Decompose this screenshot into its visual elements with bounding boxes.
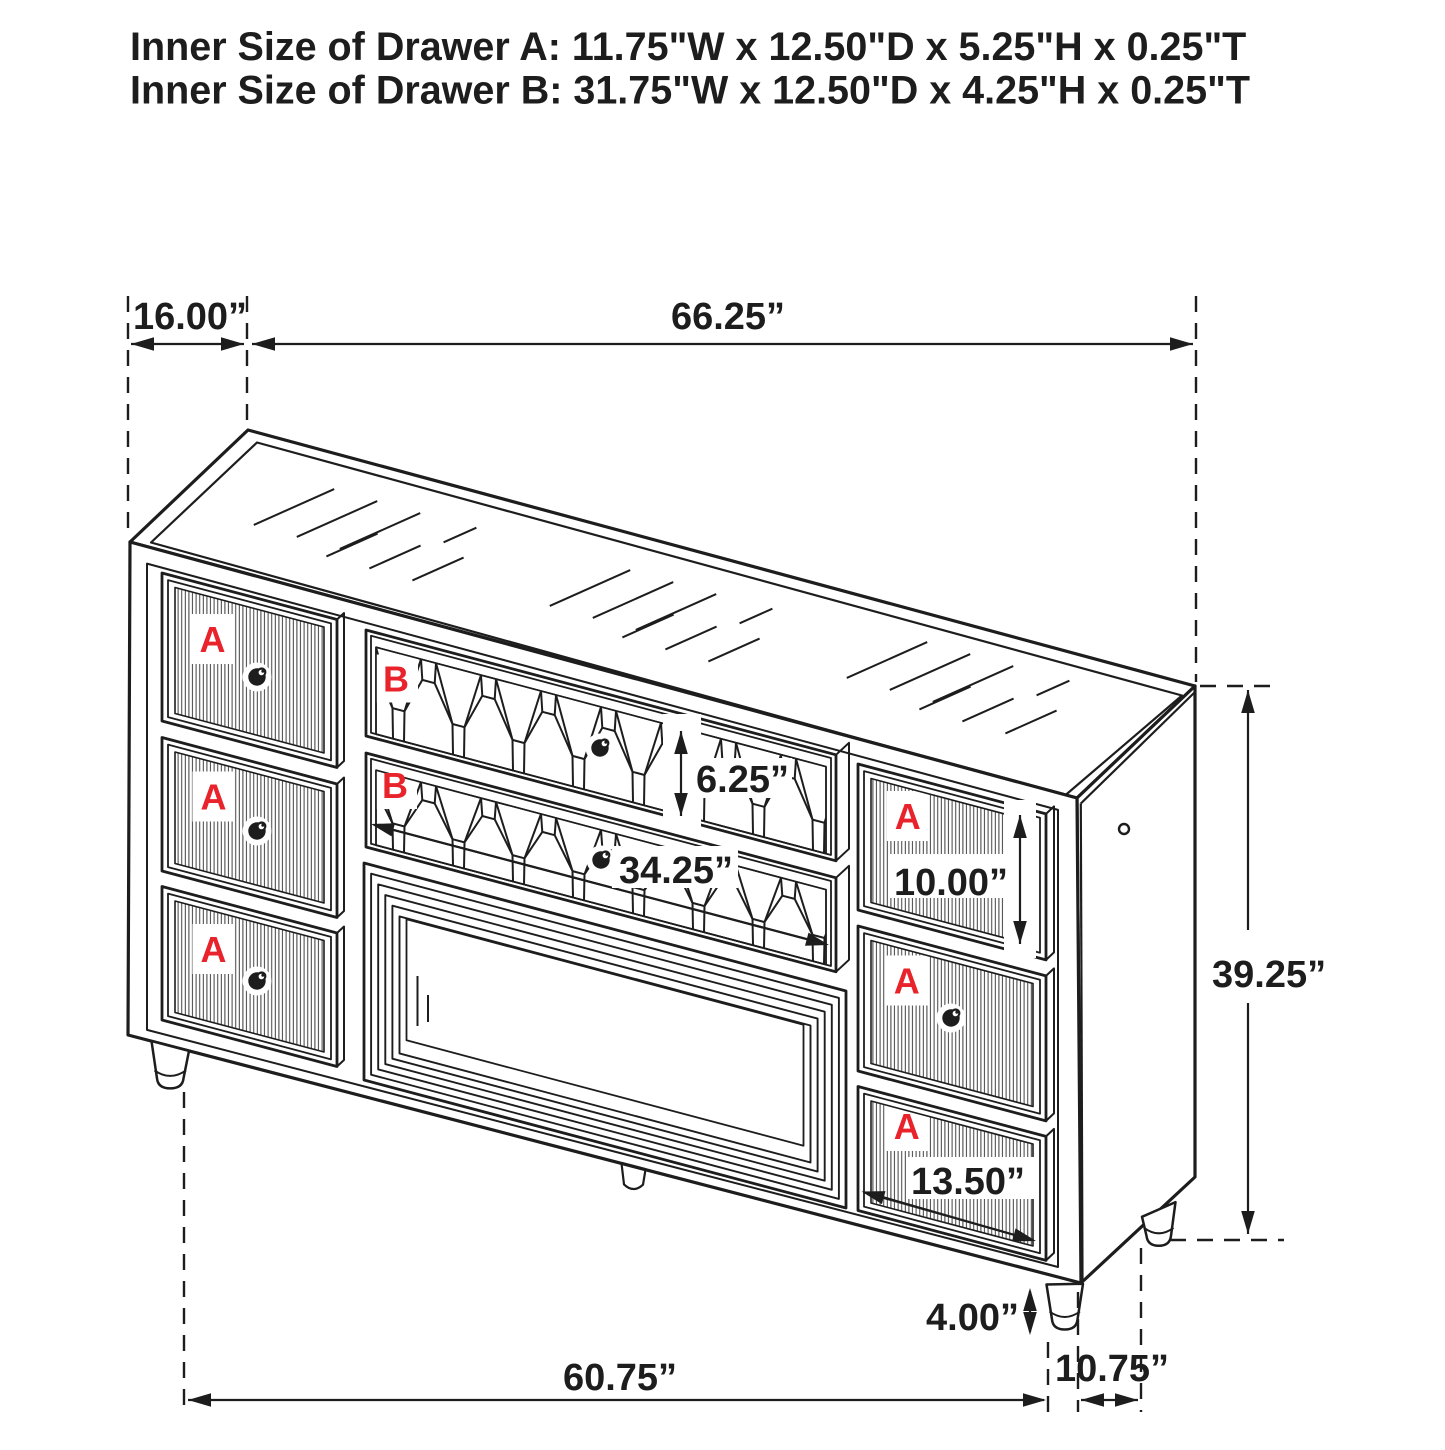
svg-text:Inner Size of Drawer B: 31.75": Inner Size of Drawer B: 31.75"W x 12.50"…	[130, 69, 1250, 113]
svg-text:B: B	[383, 659, 409, 700]
svg-text:16.00”: 16.00”	[133, 296, 247, 338]
svg-text:39.25”: 39.25”	[1212, 954, 1326, 996]
svg-text:A: A	[200, 619, 226, 660]
svg-text:66.25”: 66.25”	[671, 296, 785, 338]
svg-text:B: B	[382, 765, 408, 806]
svg-text:60.75”: 60.75”	[563, 1357, 677, 1399]
svg-text:34.25”: 34.25”	[619, 850, 733, 892]
svg-text:6.25”: 6.25”	[696, 759, 789, 801]
svg-text:A: A	[201, 929, 227, 970]
svg-text:10.00”: 10.00”	[894, 862, 1008, 904]
svg-text:A: A	[894, 1106, 920, 1147]
svg-text:Inner Size of Drawer A: 11.75": Inner Size of Drawer A: 11.75"W x 12.50"…	[130, 25, 1246, 69]
svg-text:13.50”: 13.50”	[911, 1161, 1025, 1203]
svg-text:A: A	[894, 961, 920, 1002]
svg-text:10.75”: 10.75”	[1055, 1348, 1169, 1390]
svg-text:4.00”: 4.00”	[926, 1297, 1019, 1339]
svg-text:A: A	[895, 796, 921, 837]
svg-text:A: A	[201, 777, 227, 818]
